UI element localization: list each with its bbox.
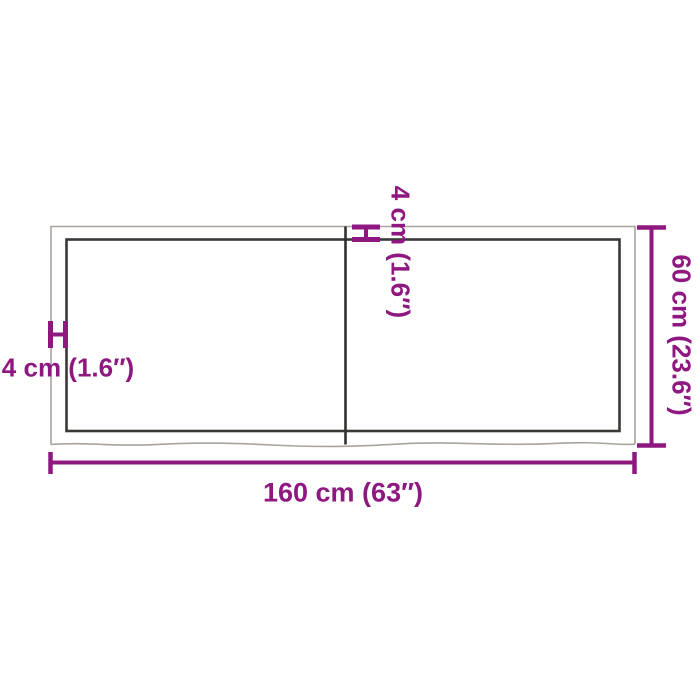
live-edge-bottom [51,443,635,447]
outer-edge [51,227,635,445]
thickness-marker-left [48,321,68,348]
dimension-lines [48,225,666,475]
depth-dimension [637,227,666,446]
thickness-left-label: 4 cm (1.6″) [2,353,134,384]
thickness-top-label: 4 cm (1.6″) [385,186,416,318]
width-dimension-label: 160 cm (63″) [263,478,423,509]
width-dimension [50,452,635,474]
dimension-diagram-canvas: 160 cm (63″) 60 cm (23.6″) 4 cm (1.6″) 4… [0,0,700,700]
diagram-linework [0,0,700,700]
thickness-marker-top [352,225,380,243]
inner-edge [67,240,620,432]
depth-dimension-label: 60 cm (23.6″) [666,254,697,415]
tabletop-outline [51,227,635,447]
